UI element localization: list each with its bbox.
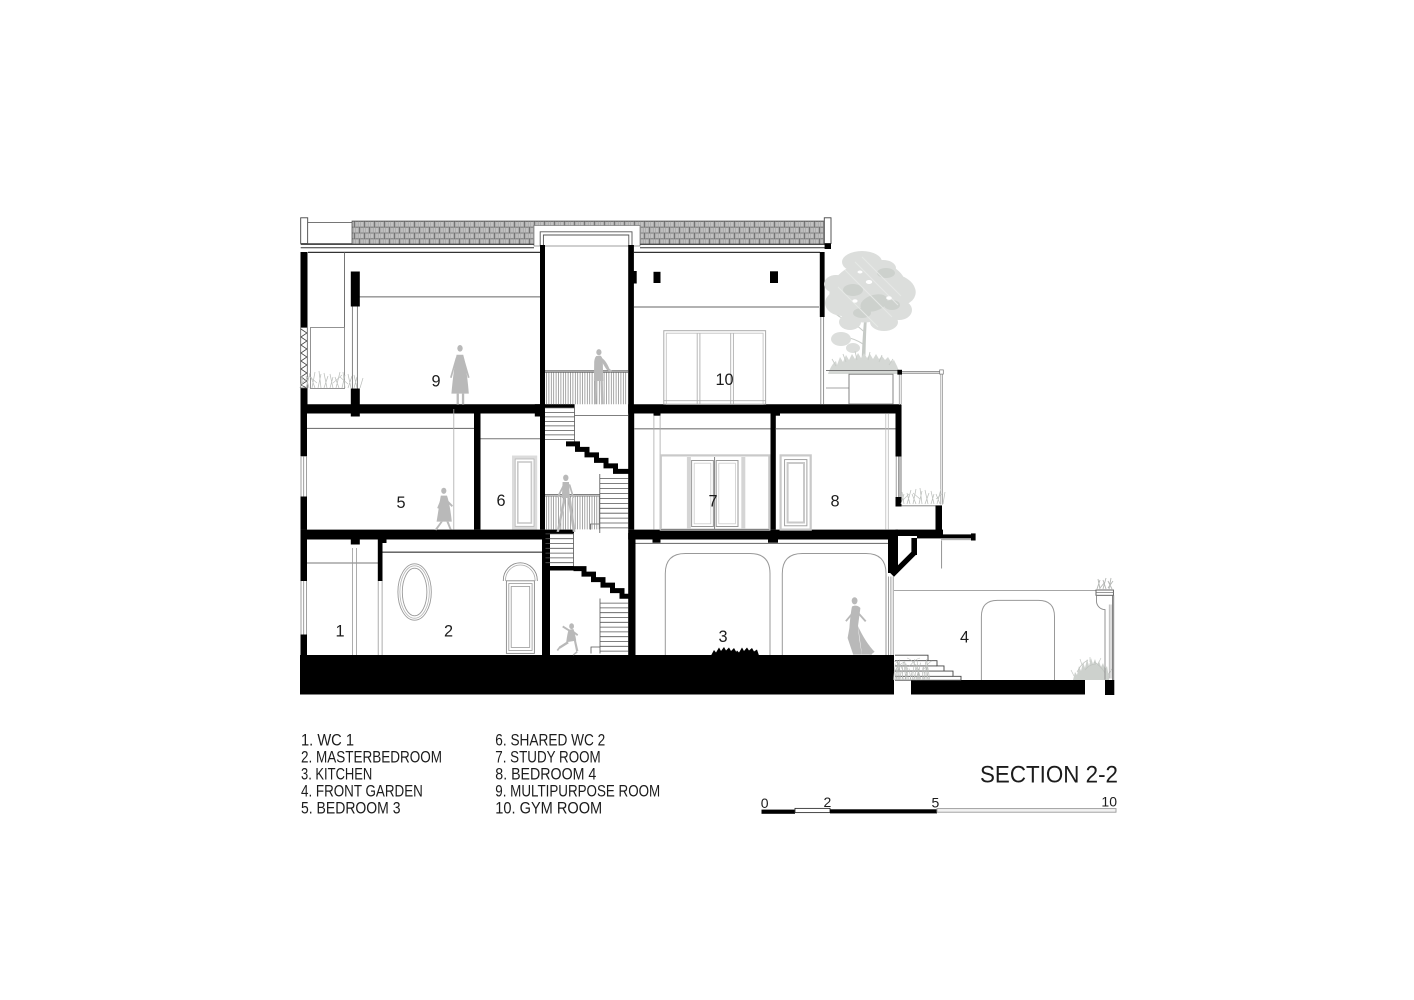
svg-text:SECTION 2-2: SECTION 2-2: [980, 762, 1118, 789]
svg-text:5. BEDROOM 3: 5. BEDROOM 3: [301, 800, 401, 818]
svg-text:2: 2: [444, 622, 453, 640]
svg-text:8. BEDROOM 4: 8. BEDROOM 4: [495, 766, 596, 784]
svg-text:1: 1: [335, 622, 344, 640]
svg-text:9: 9: [431, 373, 440, 391]
svg-text:10: 10: [1101, 794, 1117, 810]
svg-text:7. STUDY ROOM: 7. STUDY ROOM: [495, 749, 600, 767]
svg-text:5: 5: [396, 494, 405, 512]
svg-text:6. SHARED WC 2: 6. SHARED WC 2: [495, 731, 605, 749]
svg-text:4: 4: [960, 629, 969, 647]
svg-text:7: 7: [708, 493, 717, 511]
svg-text:4. FRONT GARDEN: 4. FRONT GARDEN: [301, 783, 423, 801]
svg-text:3. KITCHEN: 3. KITCHEN: [301, 766, 372, 784]
svg-text:1. WC 1: 1. WC 1: [301, 731, 354, 749]
svg-text:10. GYM ROOM: 10. GYM ROOM: [495, 800, 602, 818]
svg-text:2: 2: [824, 794, 832, 810]
svg-text:10: 10: [715, 371, 733, 389]
svg-text:6: 6: [496, 492, 505, 510]
svg-text:9. MULTIPURPOSE ROOM: 9. MULTIPURPOSE ROOM: [495, 783, 660, 801]
svg-text:3: 3: [718, 628, 727, 646]
svg-text:5: 5: [932, 794, 940, 810]
svg-text:8: 8: [830, 493, 839, 511]
svg-text:0: 0: [761, 795, 769, 811]
svg-text:2. MASTERBEDROOM: 2. MASTERBEDROOM: [301, 749, 442, 767]
